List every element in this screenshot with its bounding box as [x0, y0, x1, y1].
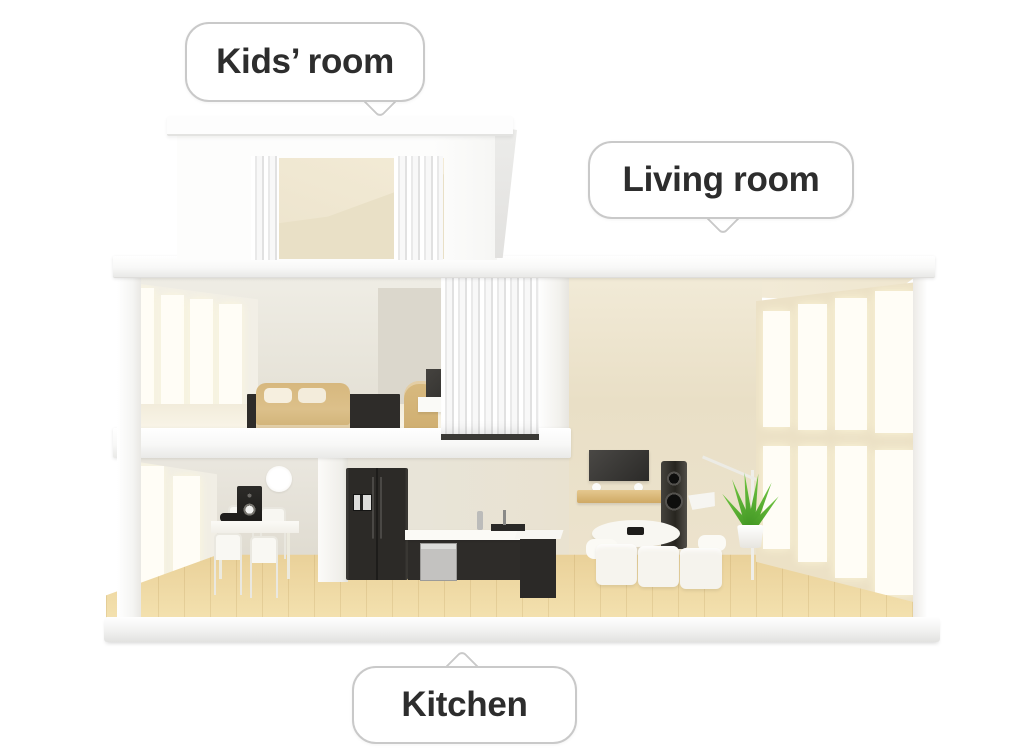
bottle	[477, 511, 483, 530]
window-pane	[798, 446, 827, 562]
wall-tv	[589, 450, 649, 481]
bedside-cabinet-right	[344, 394, 400, 432]
bedroom-curtain	[441, 262, 539, 440]
kids-room-curtain-left	[251, 156, 279, 260]
remote-device	[627, 527, 644, 535]
base-slab	[104, 617, 940, 642]
kids-room-callout-label: Kids’ room	[216, 42, 394, 82]
window-pane	[875, 291, 914, 433]
sink	[491, 524, 525, 531]
living-room-callout-label: Living room	[623, 160, 820, 200]
window-pane	[763, 311, 790, 427]
sectional-sofa-module	[596, 544, 637, 585]
window-pane	[835, 298, 867, 430]
front-right-column	[913, 260, 937, 632]
refrigerator	[346, 468, 408, 580]
kids-room-roof-side	[495, 126, 517, 258]
sectional-sofa-module	[638, 546, 679, 587]
wall-clock	[266, 466, 292, 492]
kitchen-callout-label: Kitchen	[401, 685, 527, 725]
dishwasher	[420, 543, 457, 581]
plant-pot	[737, 525, 764, 548]
window-pane	[219, 304, 242, 418]
window-pane	[875, 450, 914, 595]
house-cutaway-illustration: Kids’ room Living room Kitchen	[0, 0, 1035, 753]
counter-return	[520, 538, 556, 598]
fridge-dispenser	[353, 494, 372, 511]
window-pane	[835, 446, 867, 578]
kitchen-callout[interactable]: Kitchen	[352, 666, 577, 744]
faucet	[503, 510, 506, 525]
pillow	[264, 388, 292, 403]
living-room-callout[interactable]: Living room	[588, 141, 854, 219]
kids-room-curtain-right	[394, 156, 443, 260]
kids-room-callout[interactable]: Kids’ room	[185, 22, 425, 102]
sectional-sofa-module	[680, 548, 722, 589]
media-shelf	[577, 490, 665, 503]
potted-plant	[722, 470, 778, 530]
dining-chair	[214, 533, 242, 595]
dining-chair	[250, 536, 278, 598]
counter-return-top	[515, 530, 564, 539]
front-left-column	[117, 260, 141, 622]
window-pane	[798, 304, 827, 429]
kids-room-cornice	[167, 116, 513, 136]
living-window-wall	[756, 278, 924, 608]
divider-wall	[318, 456, 348, 582]
pillow	[298, 388, 326, 403]
